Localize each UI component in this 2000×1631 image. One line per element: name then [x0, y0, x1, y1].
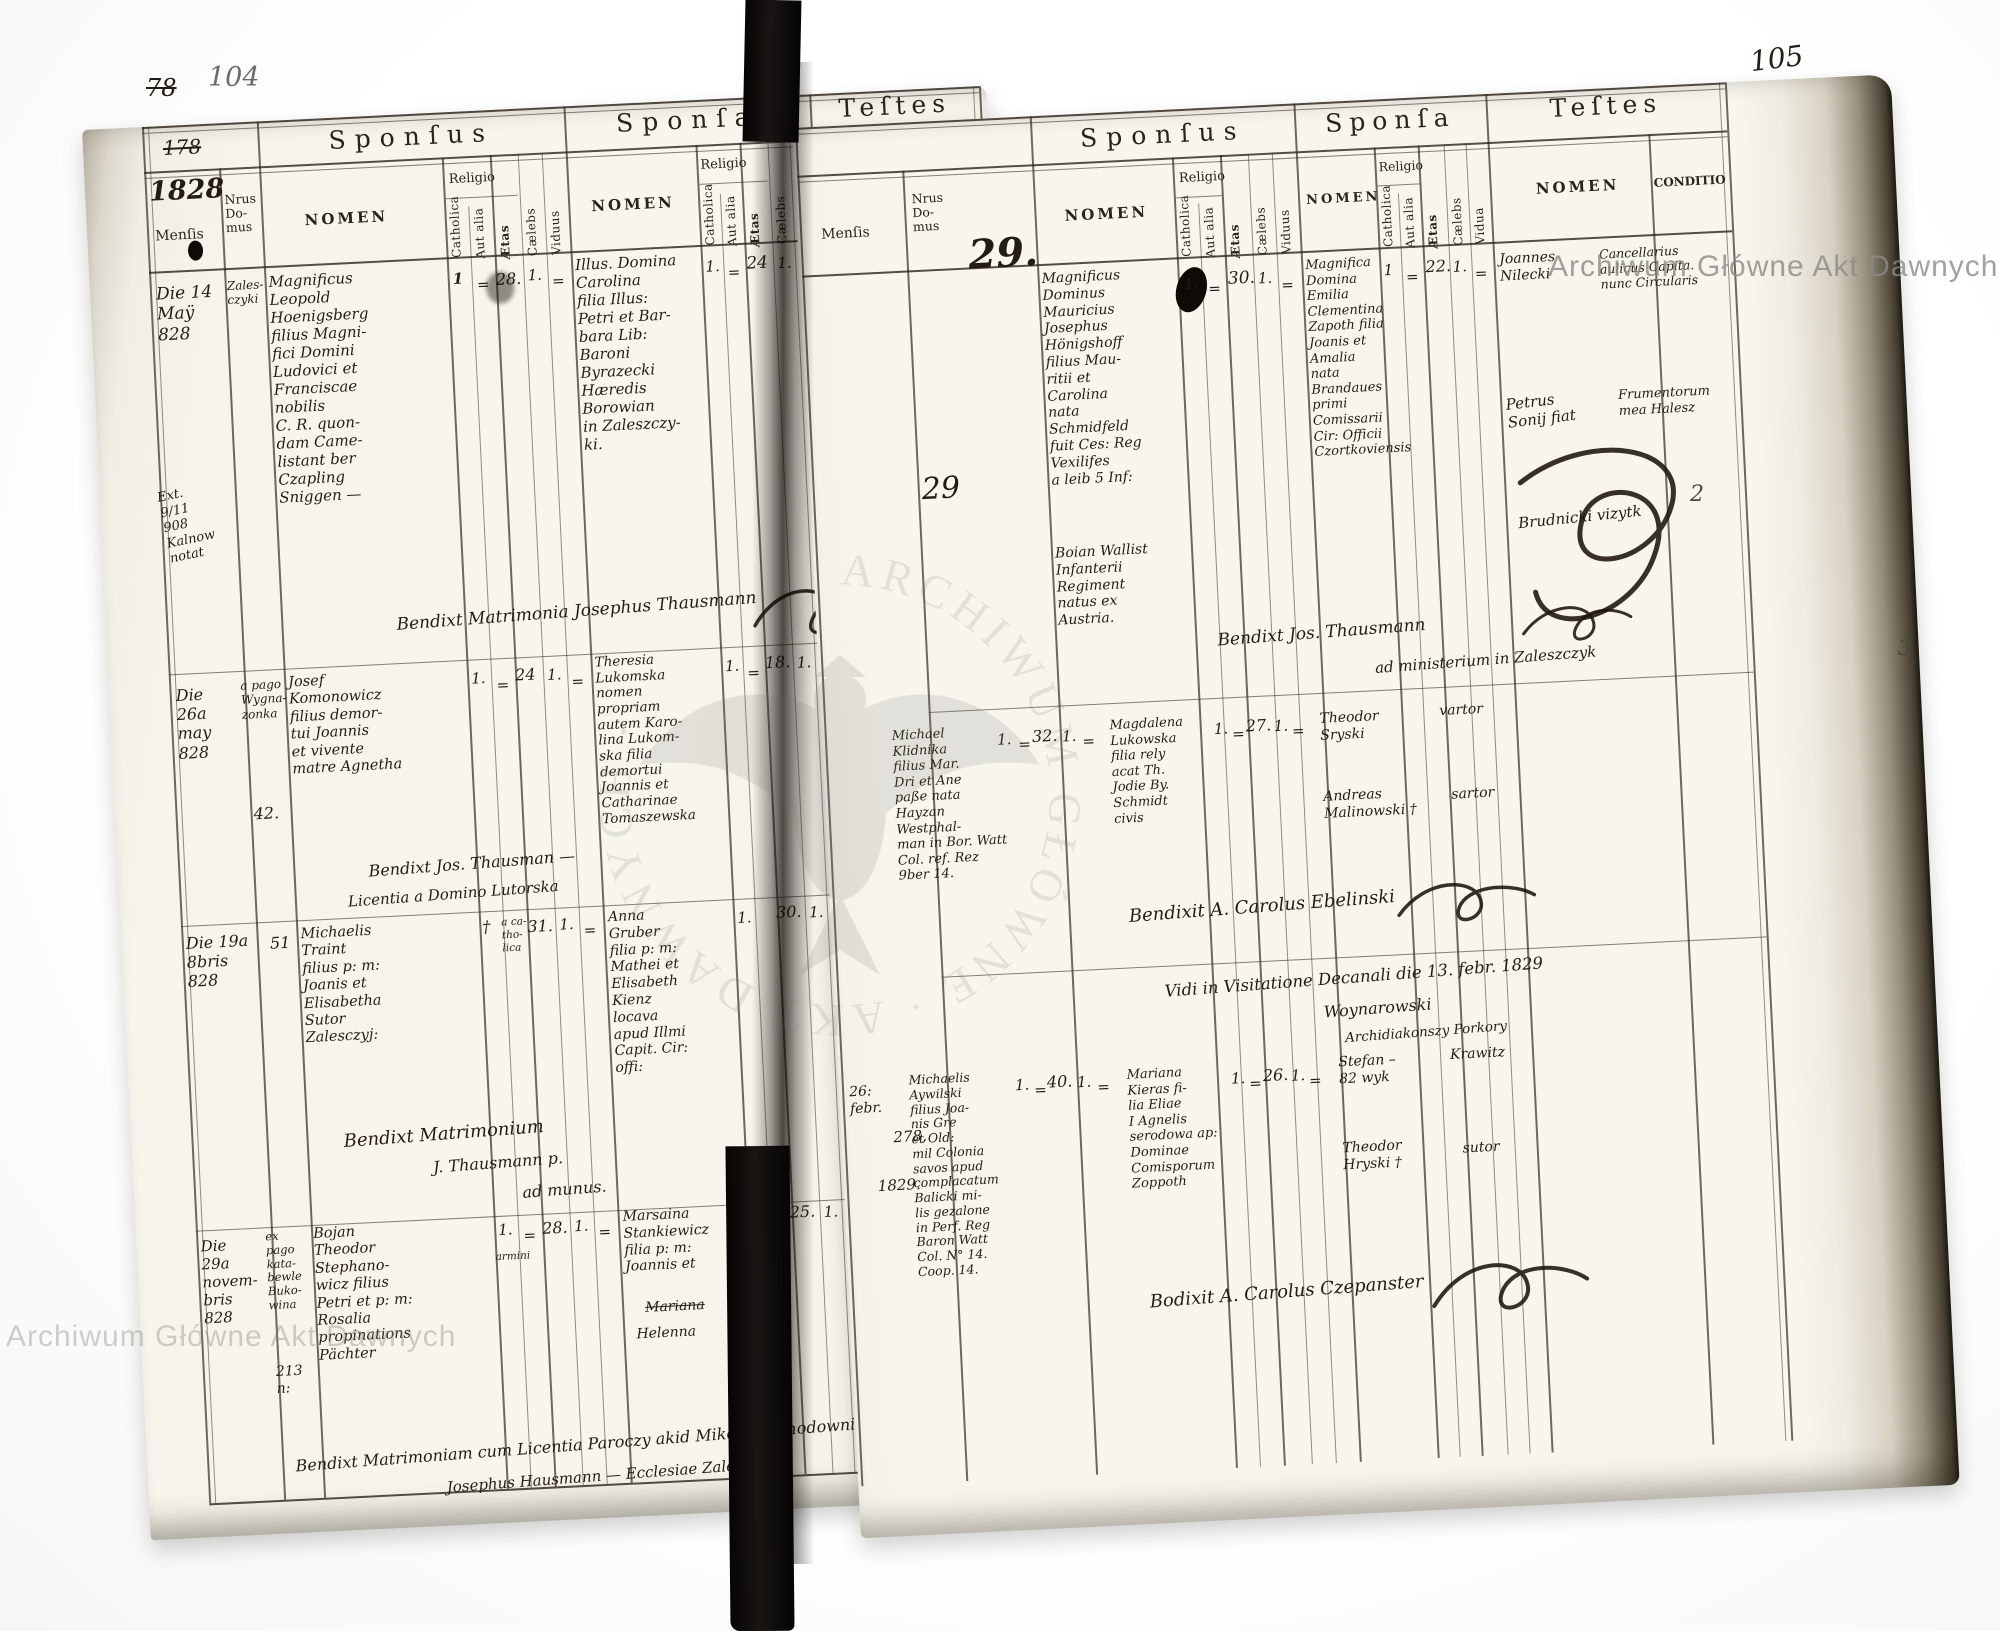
column-line: [468, 206, 532, 1488]
record2-groom-name: Josef Komonowicz filius demor- tui Joann…: [288, 669, 403, 779]
folio-104: 104: [208, 62, 260, 94]
ink-blot: [188, 240, 204, 261]
record1-groom-caelebs: 1.: [527, 266, 542, 285]
header-nomen-sponsa-right: NOMEN: [1306, 189, 1381, 208]
header-religio-sponsus: Religio: [448, 170, 495, 187]
record1-bride-autalia: =: [727, 263, 740, 282]
watermark-bottom-left: Archiwum Główne Akt Dawnych: [6, 1320, 457, 1354]
right-record1-groom-name-2: Boian Wallist Infanterii Regiment natus …: [1055, 541, 1152, 629]
right-record3-bride-vidua: =: [1309, 1071, 1322, 1090]
right-record3-groom-viduus: =: [1097, 1078, 1110, 1097]
right-record3-benedixit: Bodixit A. Carolus Czepanster: [1149, 1271, 1424, 1313]
header-aut-alia-sponsus: Aut alia: [471, 198, 488, 259]
header-sponsa-right: Sponſa: [1294, 101, 1487, 139]
record4-groom-age: 28.: [542, 1218, 568, 1238]
record2-house-note: a pago Wygna- zonka: [240, 677, 288, 722]
right-record3-groom-catholica: 1.: [1015, 1076, 1030, 1095]
header-catholica-sponsa-right: Catholica: [1379, 187, 1396, 248]
record3-house: 51: [269, 933, 290, 953]
right-record3-groom-caelebs: 1.: [1077, 1073, 1092, 1092]
record3-groom-cross: †: [482, 917, 491, 937]
record4-bride-name: Marsaina Stankiewicz filia p: m: Joannis…: [622, 1205, 711, 1276]
header-aetas-sponsus-right: Ætas: [1226, 198, 1243, 259]
record1-date: Die 14 Maÿ 828: [156, 282, 215, 346]
right-record2-conditio-1: vartor: [1439, 701, 1483, 720]
right-record1-groom-age: 30.: [1227, 268, 1255, 290]
record4-bride-name-struck: Mariana: [645, 1297, 705, 1317]
record3-groom-religion-note: a ca- tho- lica: [501, 915, 528, 956]
smudge: [485, 271, 515, 304]
header-viduus-sponsus-right: Viduus: [1277, 194, 1294, 255]
column-line: [490, 155, 557, 1487]
right-record1-bride-autalia: =: [1406, 268, 1419, 287]
right-record2-groom-viduus: =: [1082, 732, 1095, 751]
right-record3-conditio-1: Krawitz: [1450, 1044, 1506, 1063]
header-vidua-sponsa-right: Vidua: [1471, 184, 1488, 245]
record4-house: 213 n:: [276, 1363, 304, 1398]
column-line: [1648, 134, 1714, 1445]
visitation-note: Vidi in Visitatione Decanali die 13. feb…: [1164, 953, 1544, 1001]
header-catholica-sponsus-right: Catholica: [1177, 197, 1194, 258]
right-record3-date: 26: febr.: [849, 1083, 883, 1118]
header-nrus-domus: Nrus Do- mus: [224, 192, 257, 235]
right-record3-bride-catholica: 1.: [1231, 1069, 1246, 1088]
right-record3-bride-name: Mariana Kieras fi- lia Eliae I Agnelis s…: [1126, 1063, 1220, 1192]
header-caelebs-sponsus: Cælebs: [523, 196, 540, 257]
marriage-register-scan: Sponſus Sponſa Teſtes Menſis Nrus Do- mu…: [0, 0, 2000, 1631]
record3-groom-viduus: =: [583, 921, 596, 940]
record2-groom-catholica: 1.: [471, 669, 486, 688]
right-record1-groom-name: Magnificus Dominus Mauricius Josephus Hö…: [1041, 267, 1143, 490]
record2-bride-name: Theresia Lukomska nomen propriam autem K…: [594, 651, 696, 828]
margin-mark-3: 3: [1898, 636, 1911, 661]
right-record2-benedixit: Bendixit A. Carolus Ebelinski: [1128, 886, 1396, 928]
record4-bride-caelebs: 1.: [823, 1202, 838, 1221]
record4-groom-autalia: =: [523, 1226, 536, 1245]
right-record1-bride-vidua: =: [1474, 264, 1487, 283]
record4-groom-religion-note: armini: [495, 1249, 530, 1263]
right-record3-bride-age: 26.: [1262, 1065, 1288, 1085]
right-record3-groom-age: 40.: [1046, 1071, 1072, 1091]
right-record1-bride-name: Magnifica Domina Emilia Clementina Zapot…: [1305, 253, 1412, 460]
mark-29: 29.: [967, 228, 1039, 279]
record1-groom-catholica: 1: [452, 270, 463, 288]
right-record2-witness-1: Theodor Sryski: [1319, 708, 1380, 744]
header-caelebs-sponsus-right: Cælebs: [1253, 195, 1270, 256]
record2-groom-age: 24: [515, 665, 536, 685]
record4-bride-name-2: Helenna: [636, 1323, 696, 1343]
right-record2-groom-catholica: 1.: [997, 730, 1012, 749]
right-record3-bride-autalia: =: [1249, 1074, 1262, 1093]
right-record1-groom-caelebs: 1.: [1257, 269, 1272, 288]
binding-strap-top: [743, 0, 802, 143]
header-nomen-testes-right: NOMEN: [1535, 176, 1619, 198]
header-aut-alia-sponsa-right: Aut alia: [1401, 188, 1418, 249]
header-aetas-sponsa-right: Ætas: [1424, 189, 1441, 250]
record3-bride-name: Anna Gruber filia p: m: Mathei et Elisab…: [608, 906, 690, 1077]
margin-mark-2: 2: [1690, 482, 1704, 508]
right-record3-witness-1: Stefan – 82 wyk: [1338, 1052, 1397, 1088]
header-caelebs-sponsa-right: Cælebs: [1449, 185, 1466, 246]
year-1828: 1828: [148, 173, 225, 209]
record1-margin-note: Ext. 9/11 908 Kalnow notat: [156, 481, 220, 567]
header-nomen-sponsus-right: NOMEN: [1064, 203, 1148, 225]
binding-strap-bottom: [725, 1146, 794, 1631]
folio-105: 105: [1748, 39, 1805, 79]
header-aut-alia-sponsa: Aut alia: [723, 186, 740, 247]
right-record3-bride-caelebs: 1.: [1290, 1066, 1305, 1085]
right-record2-groom-caelebs: 1.: [1062, 727, 1077, 746]
record2-bride-catholica: 1.: [725, 657, 740, 676]
record1-groom-name: Magnificus Leopold Hoenigsberg filius Ma…: [268, 268, 377, 507]
signature-flourish: [1389, 864, 1542, 931]
rule: [929, 672, 1754, 713]
right-record3-witness-2: Theodor Hryski †: [1342, 1137, 1403, 1173]
record2-groom-caelebs: 1.: [547, 665, 562, 684]
column-line: [1719, 83, 1786, 1441]
record3-benedixit-3: ad munus.: [522, 1177, 607, 1202]
header-nrus-domus-right: Nrus Do- mus: [911, 191, 944, 234]
record1-groom-viduus: =: [552, 272, 565, 291]
record2-house: 42.: [253, 803, 279, 823]
right-record1-bride-catholica: 1: [1383, 261, 1393, 279]
record4-date: Die 29a novem- bris 828: [200, 1235, 260, 1328]
record3-bride-catholica: 1.: [737, 908, 752, 927]
column-line: [1198, 203, 1261, 1467]
record1-house: Zales- czyki: [226, 277, 264, 308]
header-aetas-sponsus: Ætas: [496, 199, 513, 260]
header-nomen-sponsa: NOMEN: [591, 193, 675, 215]
record2-groom-autalia: =: [496, 676, 509, 695]
record1-bride-catholica: 1.: [705, 257, 720, 276]
record2-benedixit-1: Bendixt Jos. Thausman —: [368, 846, 576, 881]
right-record2-bride-name: Magdalena Lukowska filia rely acat Th. J…: [1109, 715, 1188, 828]
header-mensis-right: Menſis: [821, 224, 870, 242]
right-record1-bride-caelebs: 1.: [1452, 257, 1467, 276]
header-nomen-sponsus: NOMEN: [304, 207, 388, 229]
record3-groom-age: 31.: [527, 916, 553, 936]
record1-bride-name: Illus. Domina Carolina filia Illus: Petr…: [575, 251, 686, 454]
right-record2-bride-caelebs: 1.: [1273, 716, 1288, 735]
header-religio-sponsus-right: Religio: [1179, 169, 1226, 186]
right-record2-groom-name: Michael Klidnika filius Mar. Dri et Ane …: [891, 723, 1009, 884]
column-line: [1725, 82, 1793, 1440]
right-page: Sponſus Sponſa Teſtes Menſis Nrus Do- mu…: [792, 74, 1960, 1538]
visitation-signature-2: Archidiakonszy Porkory: [1345, 1018, 1508, 1046]
mark-29-second: 29: [921, 470, 961, 508]
right-record2-conditio-2: sartor: [1451, 784, 1495, 803]
watermark-top-right: Archiwum Główne Akt Dawnych: [1548, 250, 1999, 284]
record4-groom-catholica: 1.: [498, 1220, 513, 1239]
signature-flourish: [1516, 592, 1638, 648]
right-record1-groom-catholica: 1.: [1184, 274, 1199, 293]
right-record2-bride-autalia: =: [1232, 725, 1245, 744]
header-catholica-sponsa: Catholica: [700, 185, 717, 246]
crossed-number: 178: [162, 134, 201, 160]
record4-groom-viduus: =: [598, 1222, 611, 1241]
right-record1-benedixit-2: ad ministerium in Zaleszczyk: [1374, 642, 1596, 677]
record2-date: Die 26a may 828: [175, 684, 212, 762]
right-record2-bride-age: 27.: [1245, 715, 1271, 735]
record3-benedixit-2: J. Thausmann p.: [432, 1148, 563, 1177]
record1-benedixit: Bendixt Matrimonia Josephus Thausmann: [396, 588, 757, 635]
header-conditio-right: CONDITIO: [1653, 172, 1726, 190]
right-record2-groom-age: 32.: [1032, 726, 1058, 746]
record3-date: Die 19a 8bris 828: [185, 931, 250, 992]
header-viduus-sponsus: Viduus: [547, 195, 564, 256]
record4-house-note: ex pago kata- bewle Buko- wina: [265, 1229, 304, 1313]
right-record2-witness-2: Andreas Malinowski †: [1323, 784, 1417, 822]
signature-flourish: [1423, 1240, 1597, 1328]
right-record3-conditio-2: sutor: [1462, 1139, 1500, 1158]
header-religio-sponsa-right: Religio: [1378, 157, 1423, 174]
right-record2-groom-autalia: =: [1018, 735, 1031, 754]
header-aut-alia-sponsus-right: Aut alia: [1201, 197, 1218, 258]
folio-78: 78: [146, 74, 177, 103]
right-record1-groom-autalia: =: [1208, 279, 1221, 298]
record3-groom-name: Michaelis Traint filius p: m: Joanis et …: [300, 922, 384, 1047]
header-religio-sponsa: Religio: [700, 156, 747, 173]
right-record2-bride-vidua: =: [1292, 722, 1305, 741]
record3-groom-caelebs: 1.: [559, 915, 574, 934]
record2-groom-viduus: =: [571, 672, 584, 691]
record4-groom-caelebs: 1.: [574, 1217, 589, 1236]
column-line: [1220, 155, 1286, 1466]
header-catholica-sponsus: Catholica: [447, 198, 464, 259]
right-record2-bride-catholica: 1.: [1213, 719, 1228, 738]
right-record3-groom-autalia: =: [1034, 1081, 1047, 1100]
right-record1-groom-viduus: =: [1281, 276, 1294, 295]
right-record1-bride-age: 22.: [1425, 256, 1451, 276]
right-record3-groom-name: Michaelis Aywilski filius Joa- nis Gre e…: [908, 1069, 1003, 1279]
